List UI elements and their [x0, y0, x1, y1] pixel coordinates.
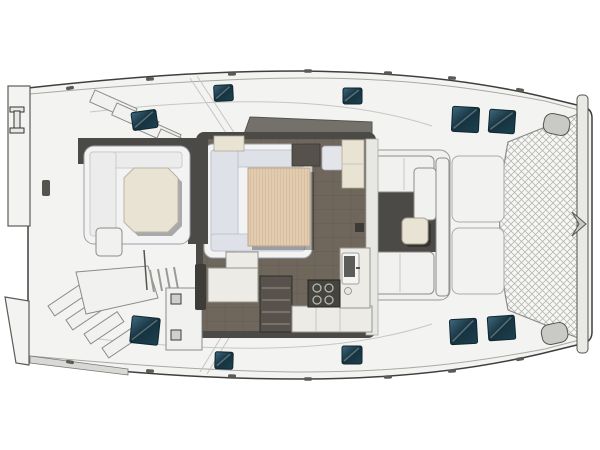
- port-side-deck-hatch-aft: [131, 109, 158, 130]
- cockpit-roof-shadow-right: [188, 138, 208, 244]
- davit-fitting: [42, 180, 50, 196]
- foredeck-hatch-port-inner: [451, 106, 479, 132]
- forward-cockpit-bench-side: [414, 168, 436, 220]
- deck-cleat-icon: [304, 69, 312, 72]
- galley-island: [208, 268, 258, 302]
- foredeck-hatch-port-outer: [488, 109, 516, 134]
- forward-cockpit: [366, 150, 450, 300]
- deck-cleat-icon: [304, 377, 312, 380]
- deck-plan-svg: [0, 0, 600, 450]
- deck-cleat-icon: [448, 76, 456, 80]
- deck-cleat-icon: [146, 77, 154, 81]
- stbd-transom-platform: [5, 297, 29, 365]
- deck-cleat-icon: [228, 72, 236, 76]
- galley-aft-cabinets: [292, 306, 372, 332]
- galley-sink: [345, 288, 352, 295]
- deck-cleat-icon: [146, 369, 154, 373]
- cockpit-cushion-left: [90, 152, 116, 236]
- deck-cleat-icon: [384, 375, 392, 379]
- console-latch-top: [171, 294, 181, 304]
- catamaran-deck-plan: [0, 0, 600, 450]
- deck-cleat-icon: [228, 374, 236, 378]
- trampoline-net: [500, 114, 578, 338]
- cockpit-table: [124, 168, 178, 232]
- saloon-cabinet-dark: [292, 144, 320, 166]
- foredeck-locker-bottom: [452, 228, 504, 294]
- floor-fitting: [355, 223, 364, 232]
- door-handle: [356, 267, 360, 269]
- foredeck-hatch-stbd-inner: [449, 318, 477, 344]
- dining-table: [248, 168, 310, 246]
- stbd-side-deck-hatch-fwd: [342, 346, 362, 364]
- deck-cleat-icon: [448, 369, 456, 373]
- nav-seat: [322, 146, 343, 170]
- foredeck-hatch-stbd-outer: [487, 315, 516, 341]
- stove: [308, 280, 340, 307]
- forward-cockpit-bench-aft: [372, 252, 434, 294]
- console-latch-bottom: [171, 330, 181, 340]
- saloon: [196, 117, 378, 338]
- forward-cockpit-table: [402, 218, 428, 244]
- gate-hinge-fitting: [195, 264, 206, 310]
- foredeck-locker-top: [452, 156, 504, 222]
- forward-cockpit-backrest: [436, 158, 449, 296]
- stbd-side-deck-hatch-aft: [130, 316, 161, 346]
- deck-cleat-icon: [384, 71, 392, 75]
- head-door-inset: [344, 256, 355, 277]
- stbd-side-deck-hatch-mid: [215, 352, 234, 370]
- saloon-sideboard: [214, 136, 244, 151]
- port-side-deck-hatch-fwd: [343, 88, 362, 104]
- cockpit-seat-small: [96, 228, 122, 256]
- port-side-deck-hatch-mid: [214, 85, 234, 102]
